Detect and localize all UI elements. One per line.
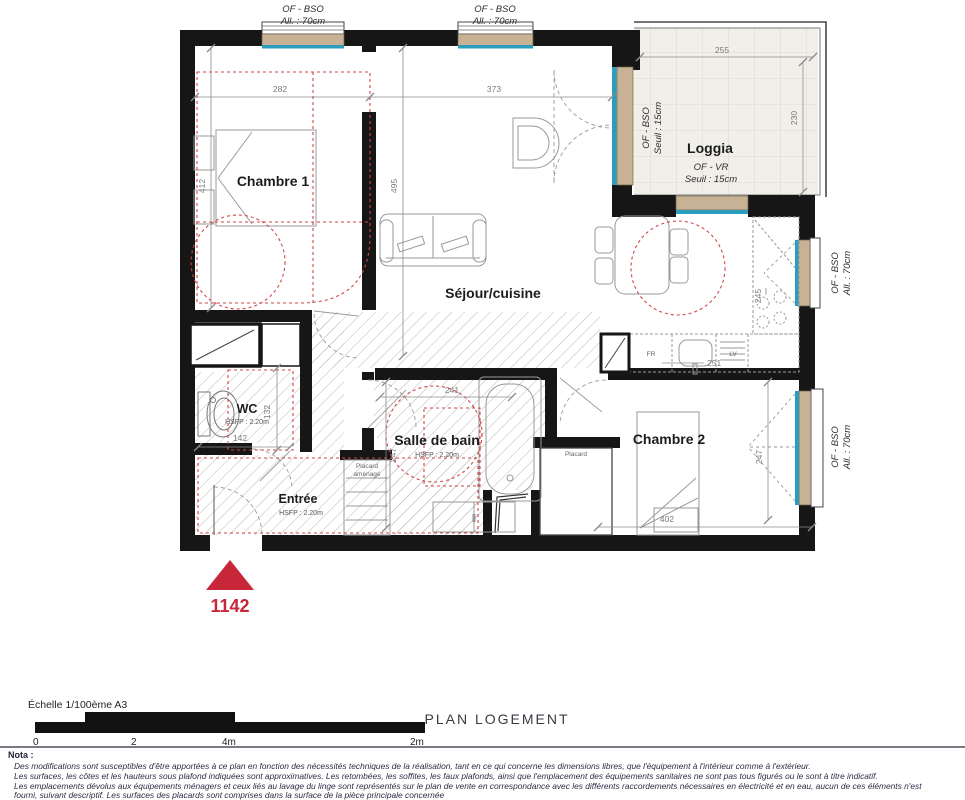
kitchen-dim-height: 245 <box>753 289 763 303</box>
nota-heading: Nota : <box>8 750 34 760</box>
chambre2-label: Chambre 2 <box>633 431 706 447</box>
chambre2-dim-h: 247 <box>754 450 764 464</box>
north-arrow-icon <box>206 560 254 590</box>
kitchen-dim-counter: 251 <box>707 358 721 368</box>
window-kitchen-loggia <box>676 196 748 214</box>
wc-dim-w: 142 <box>233 433 247 443</box>
chambre1-label: Chambre 1 <box>237 173 310 189</box>
sdb-label: Salle de bain <box>394 432 480 448</box>
nota-line-4: fourni, suivant descriptif. Les surfaces… <box>14 790 444 800</box>
sdb-hsfp: HSFP : 2.20m <box>415 452 459 459</box>
nota-block: Nota : Des modifications sont susceptibl… <box>8 750 922 800</box>
sdb-dim-w: 241 <box>445 385 459 395</box>
loggia-label: Loggia <box>687 140 733 156</box>
armchair-icon <box>513 118 559 168</box>
sejour-dim-h: 495 <box>389 179 399 193</box>
floor-plan-drawing: OF - BSO All. : 70cm OF - BSO All. : 70c… <box>0 0 965 800</box>
loggia-dim-h: 230 <box>789 111 799 125</box>
unit-number: 1142 <box>210 596 249 616</box>
sejour-label: Séjour/cuisine <box>445 285 541 301</box>
window-right1-type: OF - BSO <box>830 252 841 294</box>
chambre2-door <box>560 378 606 424</box>
sdb-dim-h: 247 <box>388 448 398 462</box>
loggia-dim-w: 255 <box>715 45 729 55</box>
floor-plan-page: OF - BSO All. : 70cm OF - BSO All. : 70c… <box>0 0 965 800</box>
placard-amenage-l2: aménagé <box>353 471 380 478</box>
chambre1-dim-h: 412 <box>197 179 207 193</box>
wardrobe-icon <box>190 324 300 366</box>
window-right2-sill: All. : 70cm <box>842 425 853 470</box>
window-right-2 <box>795 389 823 507</box>
window-right1-sill: All. : 70cm <box>842 251 853 296</box>
dining-table-icon <box>595 216 688 294</box>
scale-bar: Échelle 1/100ème A3 0 2 4m 2m <box>28 698 425 748</box>
window-loggia-door <box>612 67 633 185</box>
fridge-label: FR <box>647 351 656 358</box>
loggia-window-left-sill: Seuil : 15cm <box>653 102 664 154</box>
sofa-icon <box>380 214 486 266</box>
entree-label: Entrée <box>279 492 318 506</box>
nota-line-2: Les surfaces, les côtes et les hauteurs … <box>14 771 878 781</box>
nota-line-1: Des modifications sont susceptibles d'êt… <box>14 761 811 771</box>
loggia-window-bottom-type: OF - VR <box>694 162 729 173</box>
page-title: PLAN LOGEMENT <box>424 711 569 727</box>
tall-cabinet-icon <box>601 334 629 372</box>
loggia-window-bottom-sill: Seuil : 15cm <box>685 174 737 185</box>
placard-chambre2 <box>540 448 612 535</box>
dishwasher-label: LV <box>729 351 737 358</box>
placard-amenage-l1: Placard <box>356 463 378 470</box>
chambre2-dim-w: 402 <box>660 514 674 524</box>
unit-marker: 1142 <box>206 560 254 616</box>
sejour-dim-w: 373 <box>487 84 501 94</box>
window-top1-type: OF - BSO <box>282 4 324 15</box>
loggia-window-left-type: OF - BSO <box>641 107 652 149</box>
window-right2-type: OF - BSO <box>830 426 841 468</box>
window-top2-sill: All. : 70cm <box>472 16 517 27</box>
placard-label: Placard <box>565 451 587 458</box>
wc-label: WC <box>237 402 258 416</box>
chambre1-dim-w: 282 <box>273 84 287 94</box>
entree-hsfp: HSFP : 2.20m <box>279 510 323 517</box>
vestibule-door <box>495 494 528 533</box>
window-top2-type: OF - BSO <box>474 4 516 15</box>
scale-label: Échelle 1/100ème A3 <box>28 698 127 711</box>
loggia-french-doors <box>554 70 612 183</box>
window-top1-sill: All. : 70cm <box>280 16 325 27</box>
wc-dim-h: 132 <box>262 405 272 419</box>
